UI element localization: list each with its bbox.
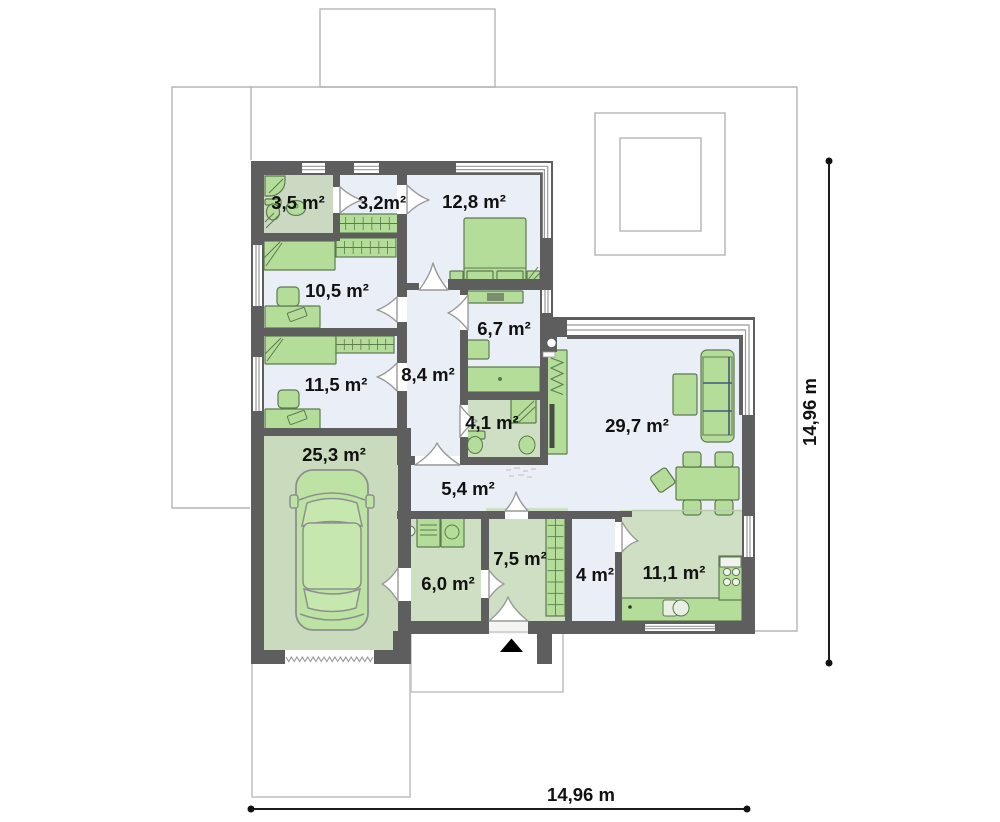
svg-text:11,5 m²: 11,5 m² (305, 374, 368, 395)
svg-text:5,4 m²: 5,4 m² (441, 478, 494, 499)
svg-text:4 m²: 4 m² (576, 564, 614, 585)
svg-text:11,1 m²: 11,1 m² (643, 562, 706, 583)
svg-text:12,8 m²: 12,8 m² (442, 191, 506, 212)
svg-text:3,2m²: 3,2m² (358, 192, 406, 213)
svg-text:7,5 m²: 7,5 m² (493, 548, 546, 569)
svg-text:3,5 m²: 3,5 m² (271, 192, 324, 213)
svg-text:6,7 m²: 6,7 m² (477, 318, 530, 339)
svg-text:8,4 m²: 8,4 m² (401, 364, 454, 385)
svg-text:29,7 m²: 29,7 m² (605, 415, 669, 436)
svg-text:14,96 m: 14,96 m (799, 378, 820, 446)
svg-text:14,96 m: 14,96 m (547, 784, 615, 805)
svg-text:25,3 m²: 25,3 m² (302, 444, 366, 465)
svg-text:6,0 m²: 6,0 m² (421, 573, 474, 594)
svg-text:4,1 m²: 4,1 m² (465, 412, 518, 433)
svg-text:10,5 m²: 10,5 m² (305, 280, 369, 301)
